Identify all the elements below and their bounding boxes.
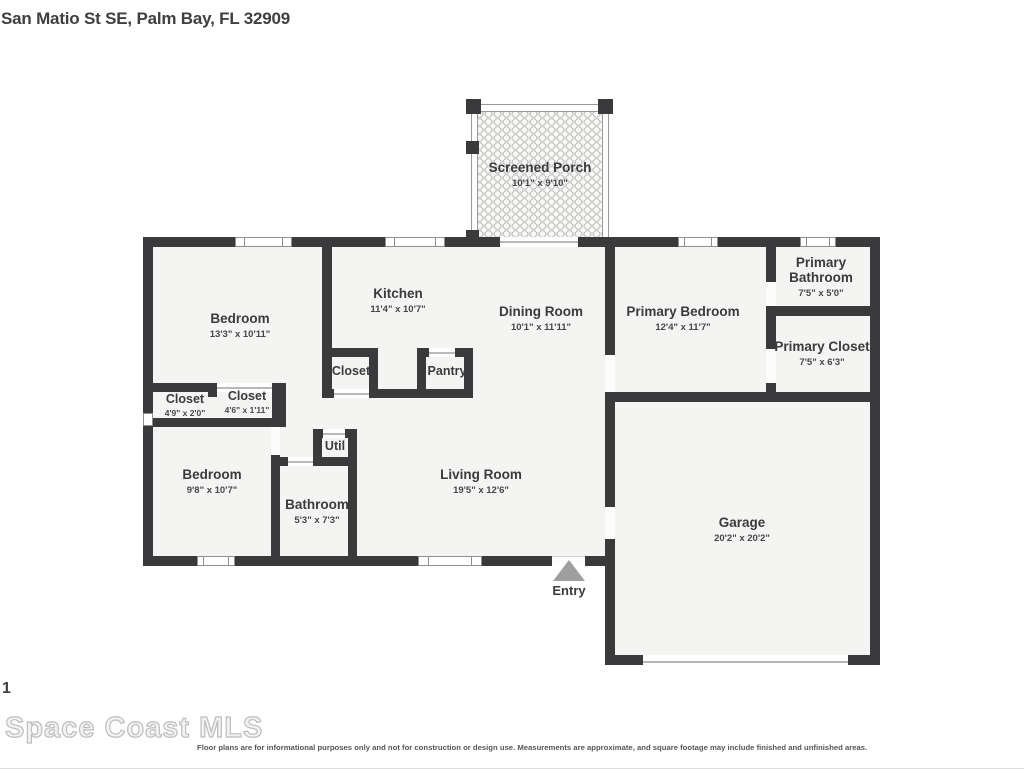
- garage-door-opening: [643, 655, 848, 665]
- room-label-closet-kitchen: Closet: [332, 365, 370, 379]
- porch-post: [466, 99, 481, 114]
- room-label-primary-closet: Primary Closet 7'5" x 6'3": [774, 340, 869, 368]
- room-label-bedroom-1: Bedroom 13'3" x 10'11": [210, 312, 271, 340]
- window: [678, 237, 718, 247]
- porch-screen-wall-top: [476, 104, 606, 112]
- window: [197, 556, 235, 566]
- room-label-util: Util: [325, 440, 345, 454]
- wall-segment: [143, 237, 153, 566]
- room-label-bathroom: Bathroom 5'3" x 7'3": [285, 498, 349, 526]
- wall-segment: [605, 392, 880, 402]
- window: [800, 237, 836, 247]
- wall-segment: [605, 539, 615, 665]
- porch-screen-wall-left: [471, 104, 478, 243]
- floor-plan-page: San Matio St SE, Palm Bay, FL 32909: [0, 0, 1024, 769]
- door-opening: [271, 427, 280, 455]
- wall-segment: [143, 383, 217, 392]
- room-label-closet-1: Closet 4'9" x 2'0": [165, 393, 205, 418]
- porch-post: [598, 99, 613, 114]
- entry-label: Entry: [552, 583, 585, 598]
- porch-door-opening: [500, 237, 578, 247]
- window: [143, 413, 153, 426]
- wall-segment: [143, 418, 286, 427]
- door-opening: [605, 355, 615, 392]
- mls-logo: Space Coast MLS: [5, 712, 263, 745]
- door-opening: [288, 457, 313, 466]
- wall-segment: [870, 237, 880, 665]
- window: [418, 556, 482, 566]
- room-label-kitchen: Kitchen 11'4" x 10'7": [370, 287, 425, 315]
- wall-segment: [766, 383, 776, 402]
- window: [235, 237, 292, 247]
- room-label-dining-room: Dining Room 10'1" x 11'11": [499, 305, 583, 333]
- room-label-primary-bedroom: Primary Bedroom 12'4" x 11'7": [626, 305, 739, 333]
- disclaimer-text: Floor plans are for informational purpos…: [197, 743, 867, 752]
- porch-post: [466, 141, 479, 154]
- room-label-pantry: Pantry: [428, 365, 467, 379]
- room-label-garage: Garage 20'2" x 20'2": [714, 516, 770, 544]
- door-opening: [334, 389, 369, 398]
- wall-segment: [322, 237, 332, 397]
- room-label-bedroom-2: Bedroom 9'8" x 10'7": [182, 468, 241, 496]
- entry-arrow-icon: [553, 560, 585, 581]
- wall-segment: [605, 237, 615, 355]
- wall-segment: [322, 389, 334, 398]
- wall-segment: [766, 306, 880, 316]
- wall-segment: [605, 392, 615, 507]
- wall-segment: [766, 237, 776, 282]
- door-opening: [766, 282, 776, 306]
- door-opening: [605, 507, 615, 539]
- room-label-living-room: Living Room 19'5" x 12'6": [440, 468, 522, 496]
- wall-segment: [271, 455, 280, 557]
- room-label-closet-2: Closet 4'6" x 1'11": [225, 390, 270, 415]
- window: [385, 237, 445, 247]
- room-label-screened-porch: Screened Porch 10'1" x 9'10": [489, 161, 592, 189]
- page-title: San Matio St SE, Palm Bay, FL 32909: [1, 9, 290, 29]
- door-opening: [323, 429, 345, 438]
- page-number: 1: [2, 680, 11, 698]
- wall-segment: [208, 383, 217, 397]
- wall-segment: [348, 429, 357, 566]
- door-opening: [429, 348, 455, 357]
- wall-segment: [417, 389, 473, 398]
- wall-segment: [271, 457, 288, 466]
- room-label-primary-bathroom: Primary Bathroom 7'5" x 5'0": [778, 256, 864, 299]
- porch-screen-wall-right: [602, 104, 609, 243]
